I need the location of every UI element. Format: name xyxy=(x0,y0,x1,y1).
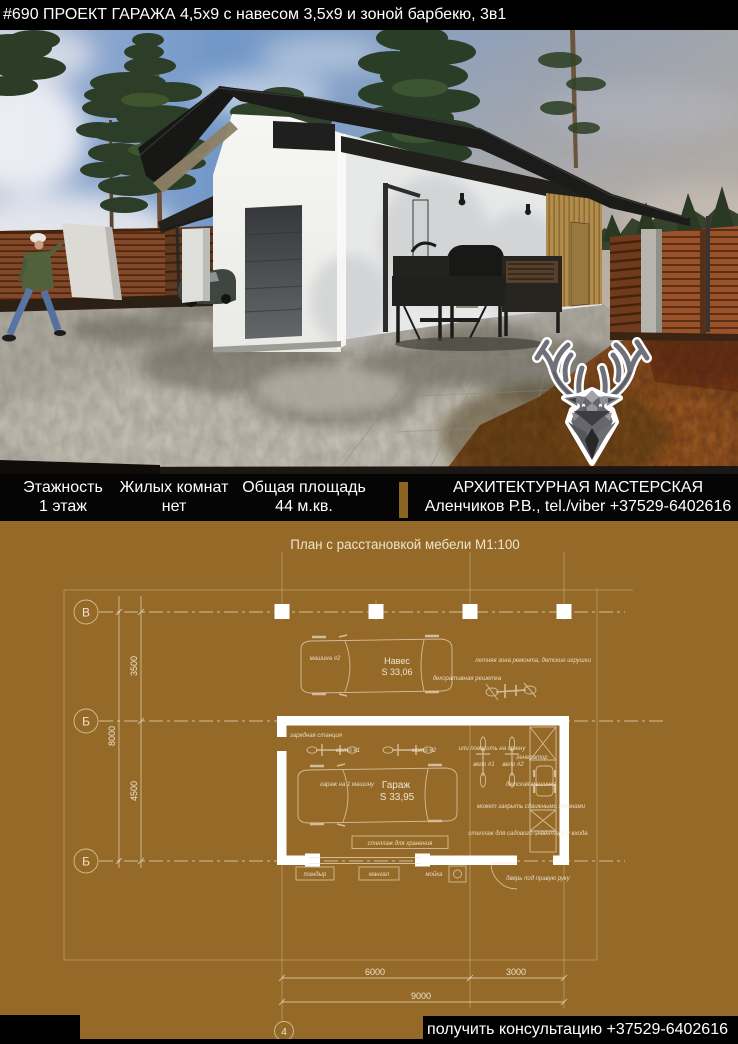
svg-text:8000: 8000 xyxy=(107,726,117,746)
svg-text:генератор: генератор xyxy=(516,755,548,761)
svg-text:В: В xyxy=(82,606,90,620)
svg-text:3500: 3500 xyxy=(129,656,139,676)
svg-text:6000: 6000 xyxy=(365,967,385,977)
svg-text:мойка: мойка xyxy=(426,871,444,878)
svg-text:9000: 9000 xyxy=(411,991,431,1001)
svg-text:мото #2: мото #2 xyxy=(412,748,437,754)
svg-text:Б: Б xyxy=(82,855,90,869)
svg-text:4: 4 xyxy=(281,1027,287,1038)
svg-text:4500: 4500 xyxy=(129,781,139,801)
svg-text:Б: Б xyxy=(82,715,90,729)
svg-text:тандыр: тандыр xyxy=(304,872,327,878)
svg-text:или повесить на стену: или повесить на стену xyxy=(459,746,527,752)
svg-text:S 33,95: S 33,95 xyxy=(380,792,415,803)
svg-text:3000: 3000 xyxy=(506,967,526,977)
svg-text:декоративная решетка: декоративная решетка xyxy=(433,676,502,682)
svg-text:вело #2: вело #2 xyxy=(502,762,524,768)
svg-text:может закрыть сдвижными экрана: может закрыть сдвижными экранами xyxy=(477,804,586,810)
svg-text:вело #1: вело #1 xyxy=(473,762,494,768)
svg-text:мото #1: мото #1 xyxy=(336,748,360,754)
svg-text:Навес: Навес xyxy=(384,656,410,666)
svg-text:летняя зона ремонта, детские и: летняя зона ремонта, детские игрушки xyxy=(474,658,591,664)
svg-text:гараж на 1 машину: гараж на 1 машину xyxy=(320,782,375,788)
svg-text:План с расстановкой мебели М1:: План с расстановкой мебели М1:100 xyxy=(290,537,519,552)
svg-text:дверь под правую руку: дверь под правую руку xyxy=(506,876,570,882)
svg-text:зарядная станция: зарядная станция xyxy=(289,733,343,739)
svg-text:детская машинка: детская машинка xyxy=(506,782,557,788)
svg-text:S 33,06: S 33,06 xyxy=(381,667,412,677)
svg-text:машина #2: машина #2 xyxy=(310,656,341,662)
svg-text:стеллаж для хранения: стеллаж для хранения xyxy=(368,841,434,847)
svg-text:стеллаж для садового инвентаря: стеллаж для садового инвентаря у входа xyxy=(468,831,588,837)
svg-text:мангал: мангал xyxy=(369,872,390,878)
svg-text:Гараж: Гараж xyxy=(382,780,411,791)
